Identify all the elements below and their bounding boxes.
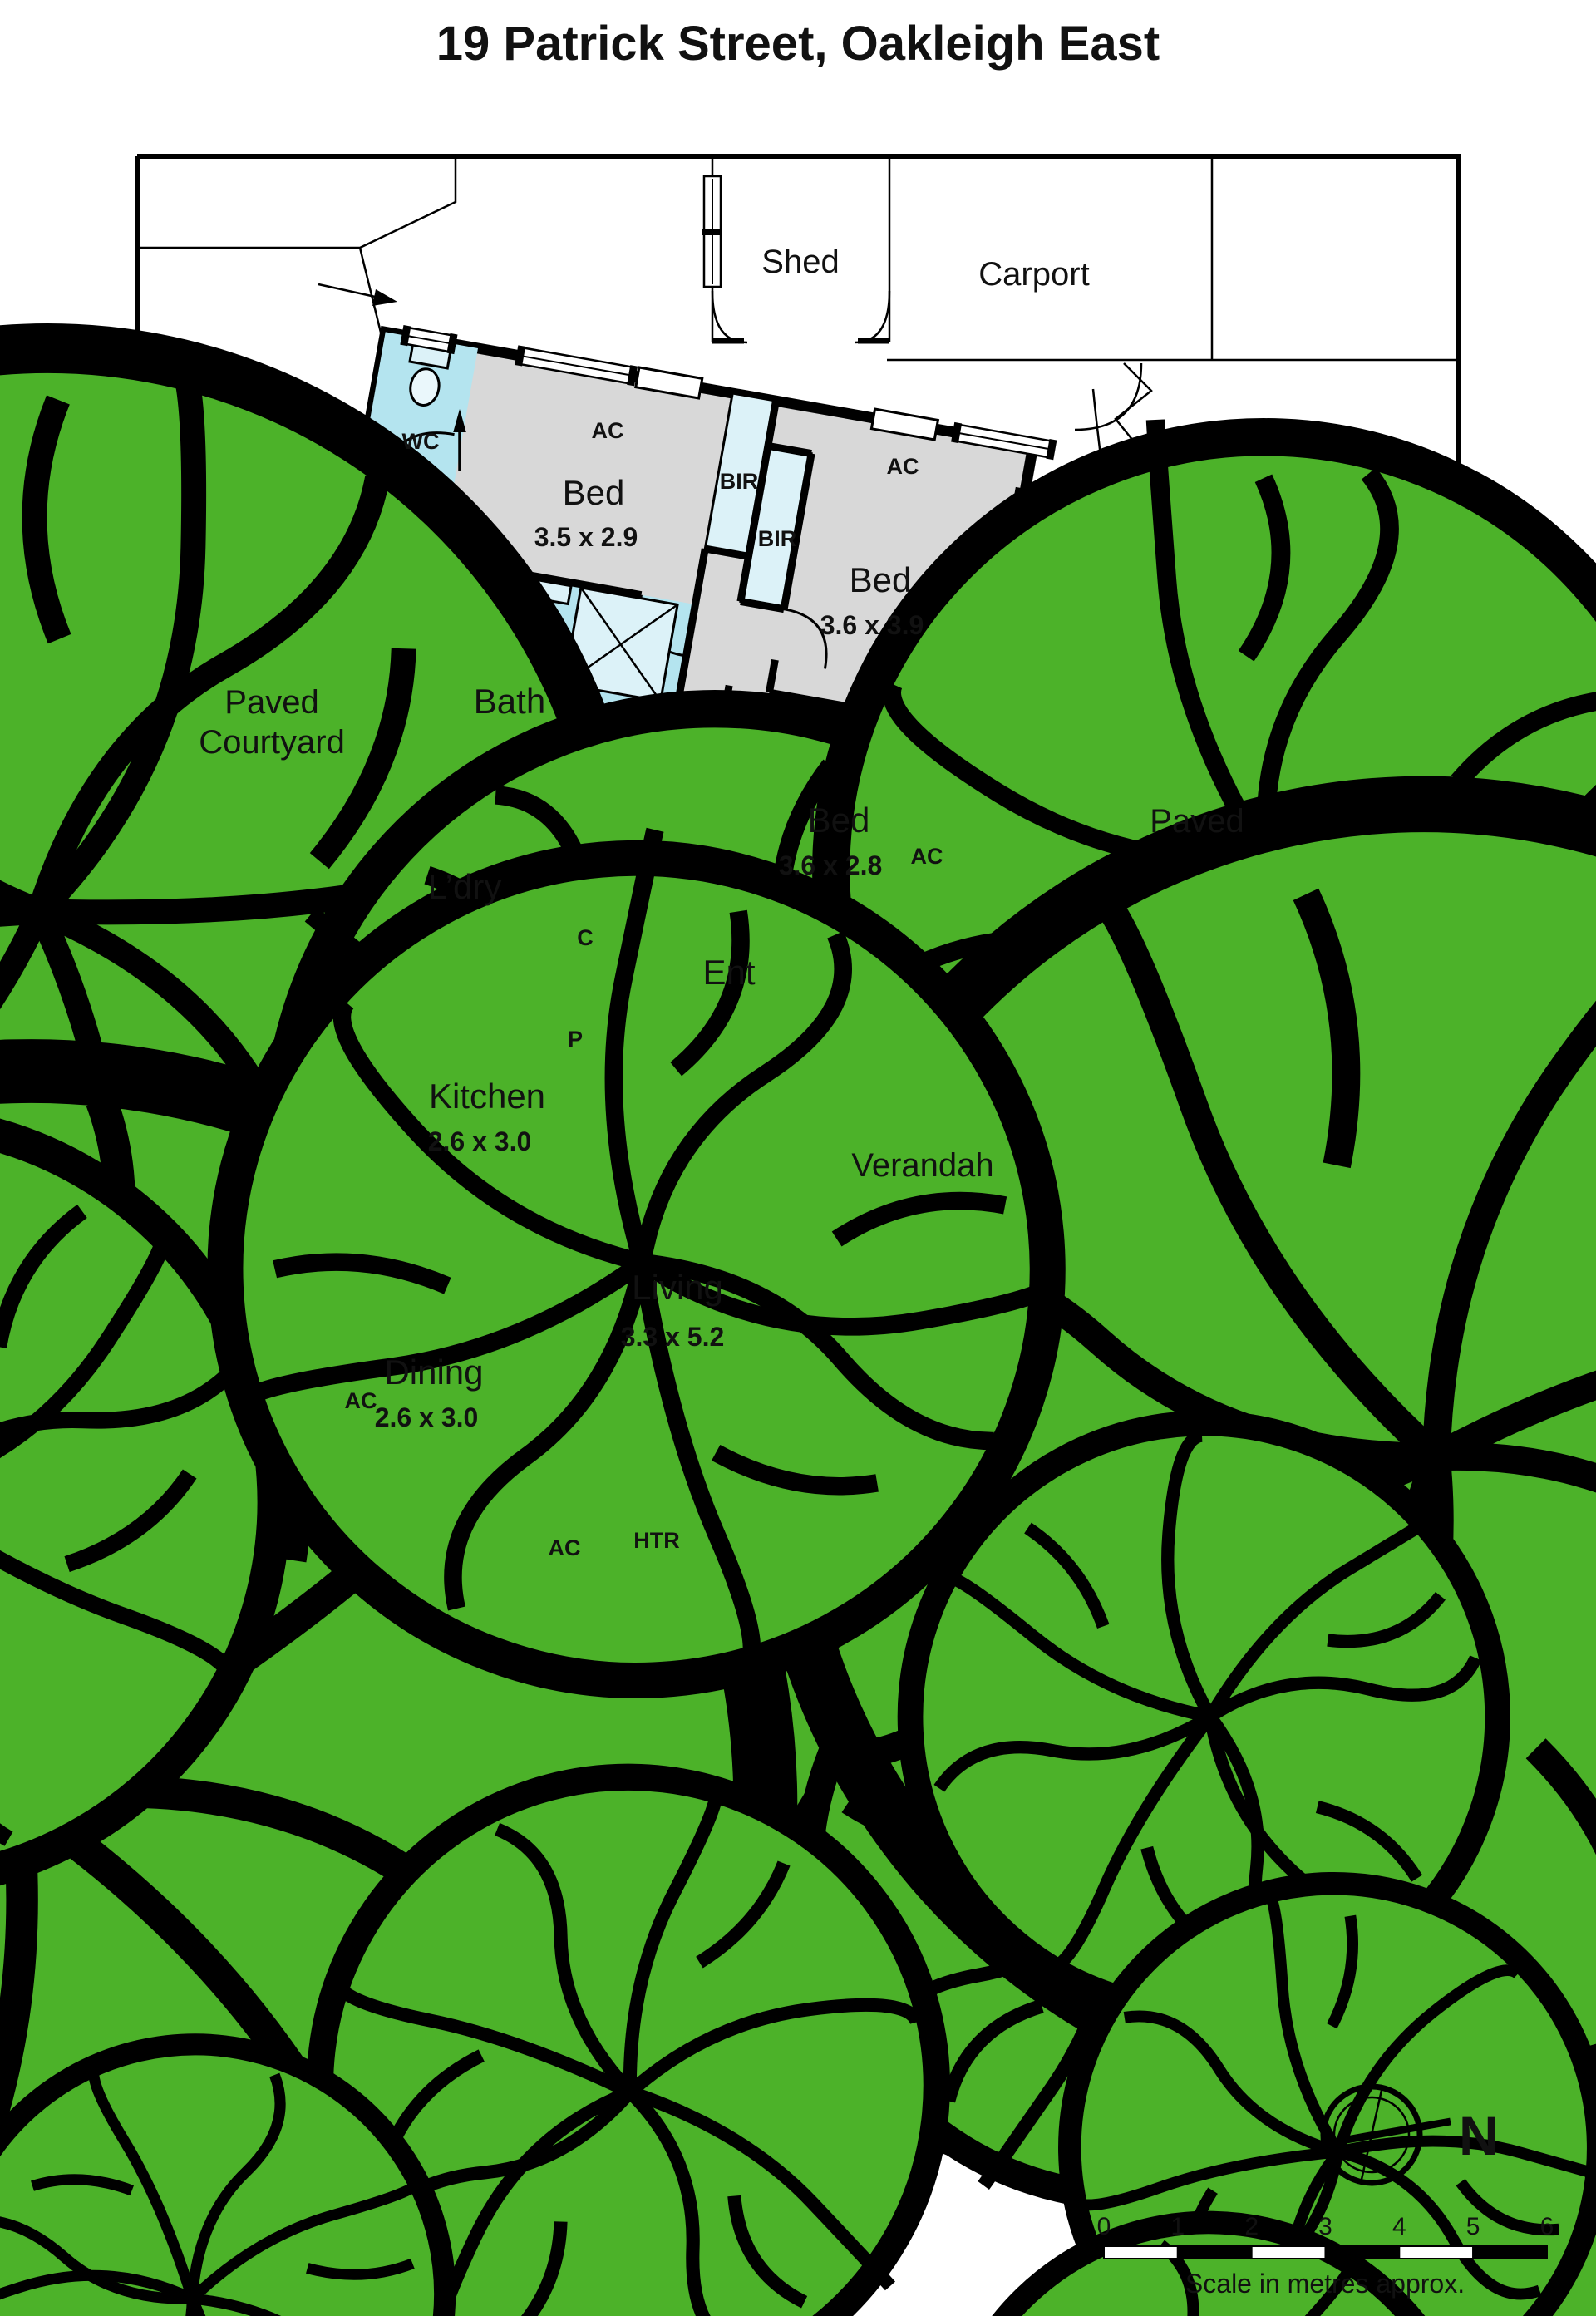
neighbour-topleft-line [137, 156, 456, 248]
fence-break-zigzag [1116, 363, 1151, 446]
shed-door-right-arc [855, 291, 889, 342]
bir1-label: BIR [720, 469, 759, 494]
pantry-label: P [568, 1027, 583, 1052]
scale-tick-label: 5 [1466, 2213, 1480, 2240]
paved-label: Paved [1150, 803, 1244, 840]
ac-label-south: AC [549, 1535, 581, 1560]
page-title: 19 Patrick Street, Oakleigh East [436, 17, 1160, 71]
scale-caption: Scale in metres approx. [1185, 2269, 1465, 2299]
laundry-label: L’dry [428, 867, 502, 906]
carport-label: Carport [978, 256, 1089, 293]
dining-label: Dining [384, 1353, 483, 1392]
bed3-label: Bed [808, 801, 870, 840]
living-label: Living [632, 1268, 723, 1307]
compass-north-label: N [1459, 2105, 1499, 2166]
scale-tick-label: 2 [1244, 2213, 1259, 2240]
scale-bar-segment [1325, 2246, 1399, 2259]
scale-tick-label: 1 [1170, 2213, 1185, 2240]
dining-dims: 2.6 x 3.0 [375, 1402, 479, 1432]
wc-label: WC [402, 429, 440, 454]
shed-label: Shed [761, 244, 839, 280]
kitchen-dims: 2.6 x 3.0 [428, 1126, 532, 1156]
bed1-dims: 3.5 x 2.9 [534, 522, 638, 552]
kitchen-label: Kitchen [429, 1077, 545, 1116]
carport-gate-arc [1075, 363, 1141, 430]
scale-tick-label: 6 [1540, 2213, 1554, 2240]
bed3-dims: 3.6 x 2.8 [779, 850, 883, 880]
scale-bar-segment [1473, 2246, 1547, 2259]
entry-arrow [318, 284, 397, 306]
ac-label-bed3: AC [911, 844, 943, 869]
ac-label-dining: AC [345, 1388, 377, 1413]
scale-tick-label: 4 [1392, 2213, 1406, 2240]
scale-bar-segment [1252, 2246, 1326, 2259]
scale-tick-label: 0 [1097, 2213, 1111, 2240]
paved-courtyard-label-1: Paved [224, 684, 318, 721]
bir2-label: BIR [758, 526, 797, 551]
living-dims: 3.3 x 5.2 [621, 1322, 725, 1352]
scale-tick-label: 3 [1318, 2213, 1332, 2240]
bed1-label: Bed [563, 473, 625, 512]
bed2-dims: 3.6 x 3.9 [820, 610, 924, 640]
ac-label-bed1: AC [592, 418, 624, 443]
scale-bar-segment [1399, 2246, 1473, 2259]
scale-bar-segment [1178, 2246, 1252, 2259]
shed-window [702, 176, 722, 287]
scale-bar-segment [1104, 2246, 1178, 2259]
cupboard-label: C [577, 925, 594, 950]
verandah-label: Verandah [851, 1147, 993, 1184]
floor-plan-canvas: N 0123456 Scale in metres approx. 19 Pat… [0, 0, 1596, 2316]
bed2-label: Bed [850, 560, 912, 599]
htr-label: HTR [633, 1528, 680, 1553]
floor-plan-page: N 0123456 Scale in metres approx. 19 Pat… [0, 0, 1596, 2316]
ac-label-bed2: AC [887, 454, 919, 479]
ent-label: Ent [702, 953, 755, 992]
shed-door-left-arc [712, 291, 747, 342]
paved-courtyard-label-2: Courtyard [199, 724, 345, 761]
bath-label: Bath [474, 682, 545, 721]
